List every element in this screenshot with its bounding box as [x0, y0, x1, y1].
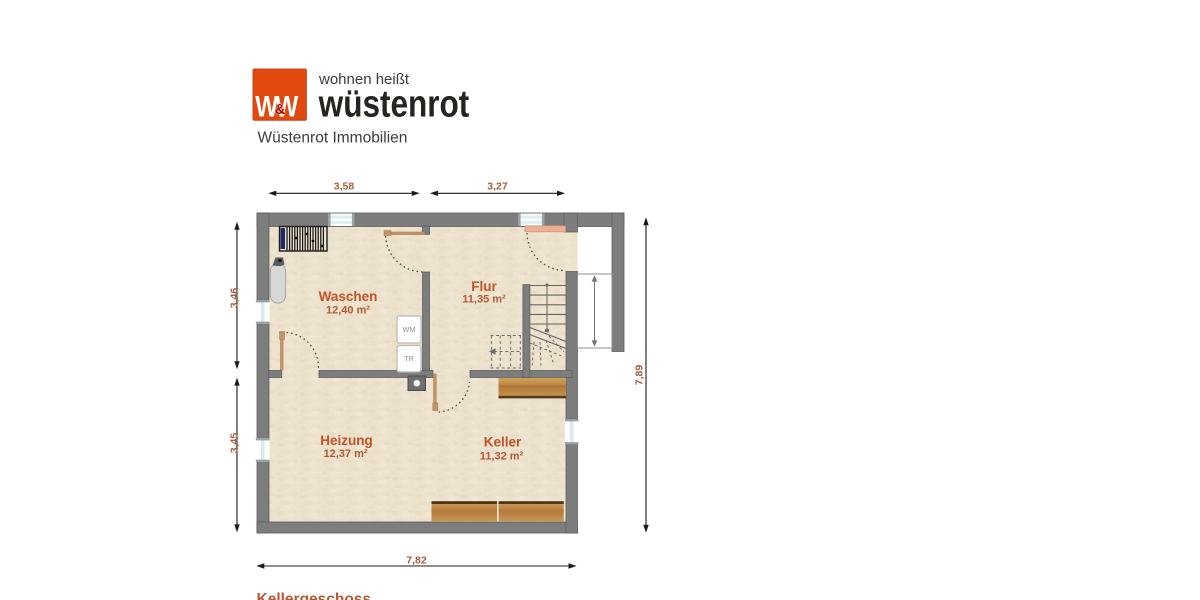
svg-text:3,46: 3,46 — [229, 288, 241, 309]
svg-text:11,32 m²: 11,32 m² — [480, 451, 524, 463]
svg-text:TR: TR — [404, 354, 414, 363]
svg-text:12,37 m²: 12,37 m² — [323, 448, 367, 460]
svg-text:3,58: 3,58 — [334, 181, 355, 193]
svg-text:&: & — [275, 102, 286, 118]
svg-text:wüstenrot: wüstenrot — [318, 83, 470, 125]
svg-text:Waschen: Waschen — [319, 289, 378, 304]
svg-text:7,82: 7,82 — [406, 555, 427, 567]
svg-text:7,89: 7,89 — [634, 365, 646, 386]
svg-text:Wüstenrot Immobilien: Wüstenrot Immobilien — [258, 130, 408, 147]
svg-text:3,27: 3,27 — [487, 181, 508, 193]
svg-text:Kellergeschoss: Kellergeschoss — [257, 591, 372, 600]
svg-text:WM: WM — [403, 325, 416, 334]
svg-text:Keller: Keller — [484, 435, 522, 450]
svg-text:Heizung: Heizung — [320, 433, 373, 448]
svg-text:12,40 m²: 12,40 m² — [326, 305, 370, 317]
svg-text:Flur: Flur — [471, 279, 497, 294]
svg-text:3,45: 3,45 — [229, 433, 241, 454]
svg-text:11,35 m²: 11,35 m² — [462, 294, 506, 306]
